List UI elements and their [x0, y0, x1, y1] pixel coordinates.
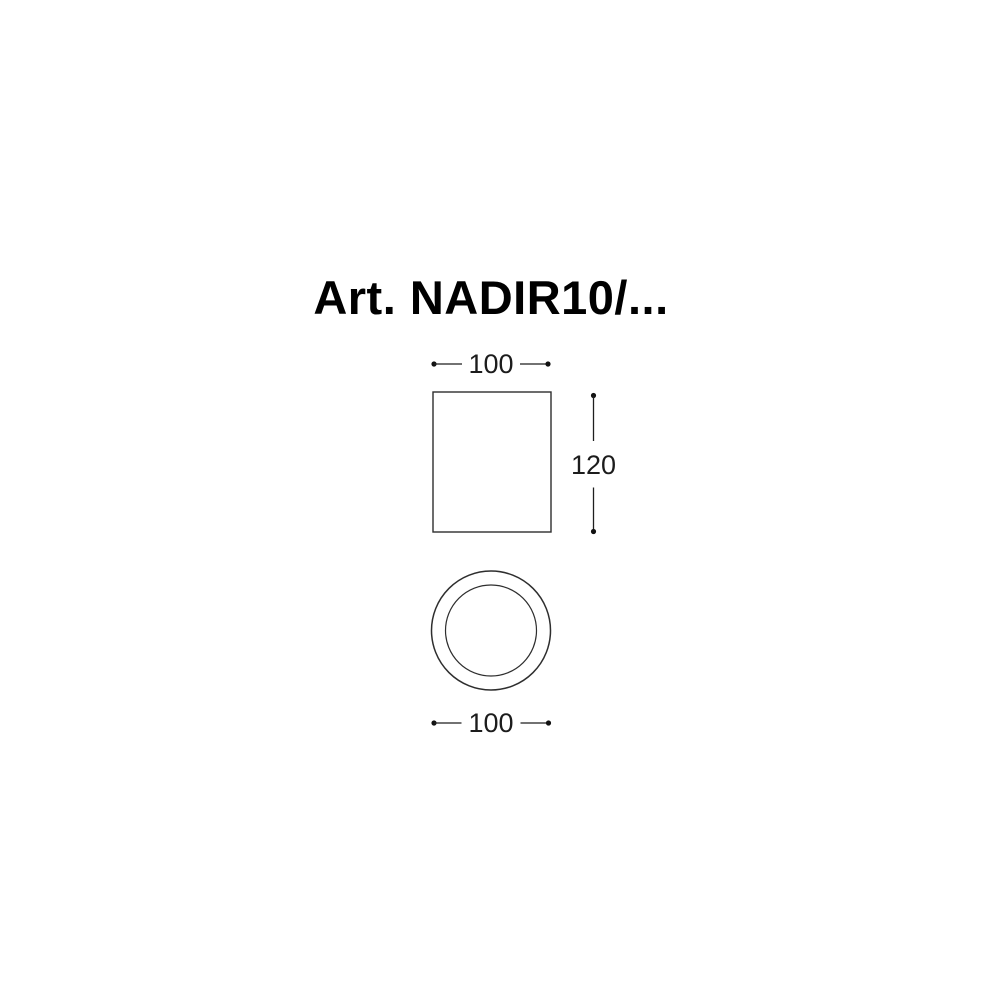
- front-view-rectangle: [433, 392, 551, 532]
- front-height-dimension: 120: [571, 393, 616, 534]
- bottom-view: [432, 571, 551, 690]
- front-height-label: 120: [571, 450, 616, 480]
- bottom-diameter-dimension: 100: [431, 708, 551, 738]
- front-width-dimension: 100: [431, 349, 550, 379]
- bottom-diameter-label: 100: [468, 708, 513, 738]
- dimension-endpoint-dot: [546, 720, 551, 725]
- dimension-drawing: 100 120 100: [0, 0, 1000, 1000]
- dimension-endpoint-dot: [545, 361, 550, 366]
- front-width-label: 100: [468, 349, 513, 379]
- dimension-endpoint-dot: [591, 529, 596, 534]
- drawing-canvas: Art. NADIR10/... 100 120: [0, 0, 1000, 1000]
- bottom-view-inner-circle: [446, 585, 537, 676]
